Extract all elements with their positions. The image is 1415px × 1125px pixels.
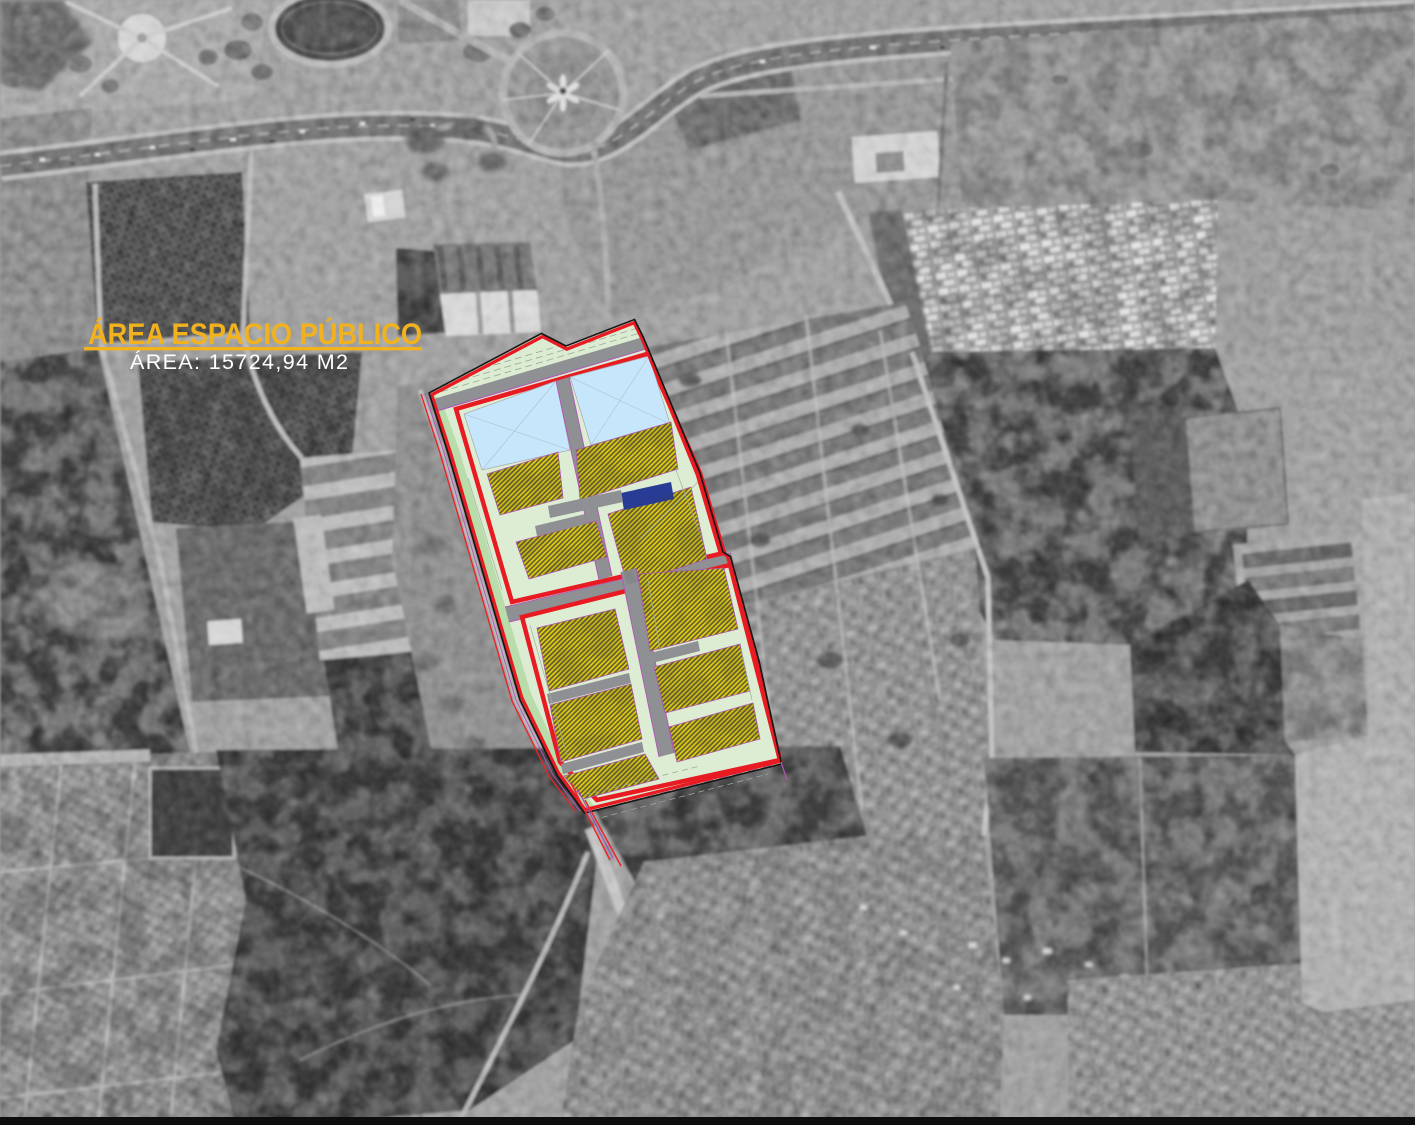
svg-text:ÁREA: 15724,94 M2: ÁREA: 15724,94 M2 (130, 349, 348, 374)
svg-text:ÁREA ESPACIO PÚBLICO: ÁREA ESPACIO PÚBLICO (88, 317, 422, 351)
